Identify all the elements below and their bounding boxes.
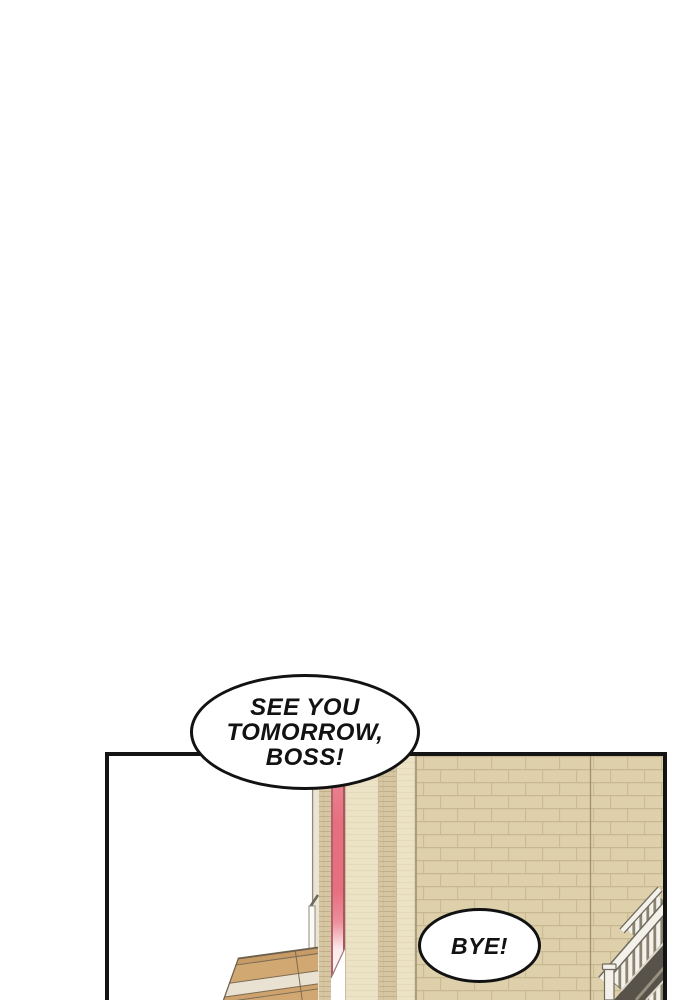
facade-pillar-1: [345, 756, 379, 1000]
speech-line: BYE!: [451, 934, 508, 958]
building-facade: [312, 756, 415, 1000]
red-banner: [331, 756, 345, 980]
speech-line: BOSS!: [266, 745, 345, 770]
speech-bubble-bye: BYE!: [418, 908, 541, 983]
comic-panel: [105, 752, 667, 1000]
comic-page: SEE YOU TOMORROW, BOSS! BYE!: [0, 0, 690, 1000]
panel-artwork: [109, 756, 663, 1000]
speech-line: SEE YOU: [250, 695, 360, 720]
facade-pillar-2: [396, 756, 415, 1000]
speech-line: TOMORROW,: [227, 720, 384, 745]
railing-end-post: [605, 968, 615, 1000]
facade-column-left: [319, 756, 331, 1000]
speech-bubble-boss: SEE YOU TOMORROW, BOSS!: [190, 674, 420, 790]
facade-column-mid: [379, 756, 396, 1000]
